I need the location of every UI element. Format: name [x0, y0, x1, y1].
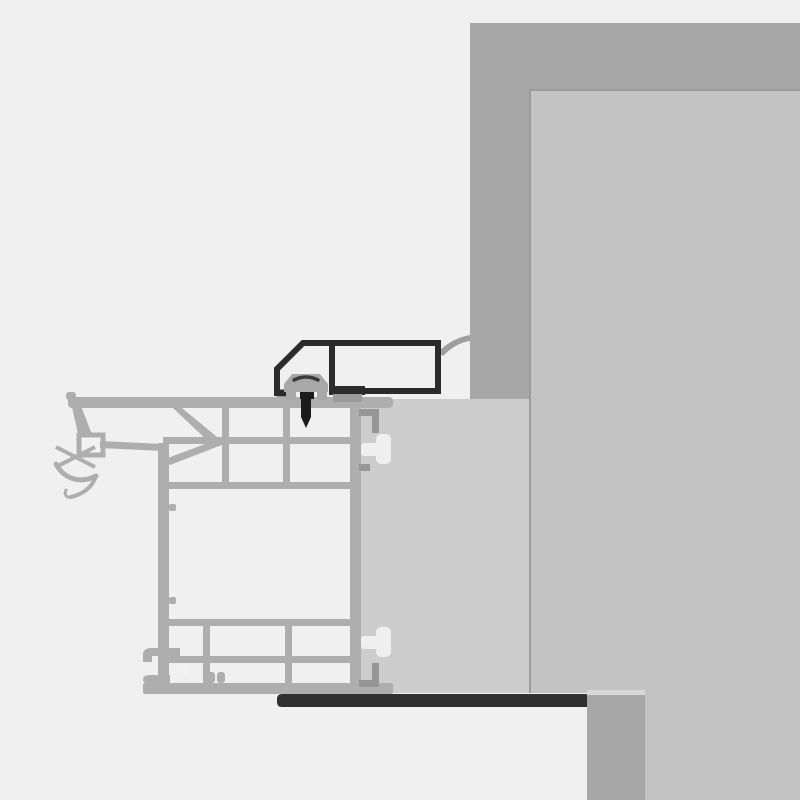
frame-web-left	[100, 441, 163, 451]
anchor-tab-upper	[359, 464, 370, 471]
frame-wall-nub-lower	[169, 597, 176, 604]
frame-web-v4	[285, 626, 292, 683]
clip-foot-left	[286, 392, 296, 400]
bracket-gasket-pad	[333, 394, 362, 402]
frame-web-v1	[222, 408, 229, 489]
frame-gasket-assembly	[56, 435, 103, 497]
frame-web-h2	[164, 482, 354, 489]
frame-web-v2	[283, 408, 290, 489]
sill-seam-highlight	[587, 690, 645, 695]
frame-wall-nub-upper	[169, 504, 176, 511]
interior-panel-face	[531, 91, 800, 693]
wall-below-sill	[587, 690, 645, 800]
frame-serration-1	[207, 672, 215, 683]
frame-bottom-notch	[176, 664, 188, 675]
frame-web-h4	[169, 656, 354, 663]
sealing-membrane	[438, 335, 470, 356]
window-installation-cross-section	[0, 0, 800, 800]
installation-detail-diagram	[0, 0, 800, 800]
frame-right-wall	[350, 405, 361, 685]
interior-panel-lower	[645, 693, 800, 800]
clip-foot-right	[317, 392, 327, 400]
bracket-bottom-step	[329, 386, 365, 395]
interior-panel	[529, 89, 800, 800]
gasket-tail-curl	[65, 490, 71, 497]
frame-web-h3	[164, 619, 354, 626]
frame-web-h1	[163, 437, 353, 444]
sill-hook-wall	[158, 650, 169, 678]
screw-shank	[300, 392, 314, 428]
sill-hook-lower-arm	[143, 675, 170, 684]
anchor-lug-upper-head	[376, 434, 391, 464]
base-seal-strip	[277, 694, 587, 707]
frame-bottom-flange	[143, 683, 393, 694]
frame-sill-hook	[143, 648, 180, 684]
frame-serration-2	[217, 672, 225, 683]
wall-column-below	[587, 695, 645, 800]
anchor-lug-lower-head	[376, 627, 391, 657]
window-frame-profile	[56, 392, 393, 694]
